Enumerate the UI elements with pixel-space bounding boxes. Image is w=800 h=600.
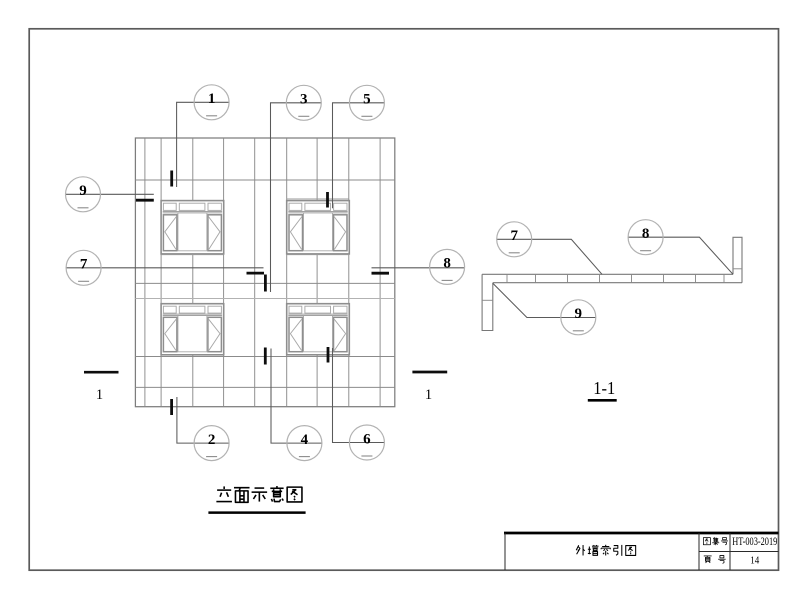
svg-text:4: 4 [301,432,309,448]
svg-text:9: 9 [575,306,583,322]
svg-text:9: 9 [79,183,87,199]
svg-text:1: 1 [208,91,216,107]
svg-text:8: 8 [642,226,650,242]
svg-text:3: 3 [300,92,308,108]
svg-text:1-1: 1-1 [593,378,615,398]
svg-text:2: 2 [208,432,216,448]
svg-text:7: 7 [510,228,518,244]
svg-text:6: 6 [363,431,371,447]
svg-text:1: 1 [96,387,103,403]
svg-text:8: 8 [443,256,451,272]
svg-text:5: 5 [363,92,371,108]
svg-text:14: 14 [750,554,759,566]
svg-text:7: 7 [80,257,88,273]
svg-text:1: 1 [425,387,432,403]
svg-text:HT-003-2019: HT-003-2019 [732,536,777,548]
